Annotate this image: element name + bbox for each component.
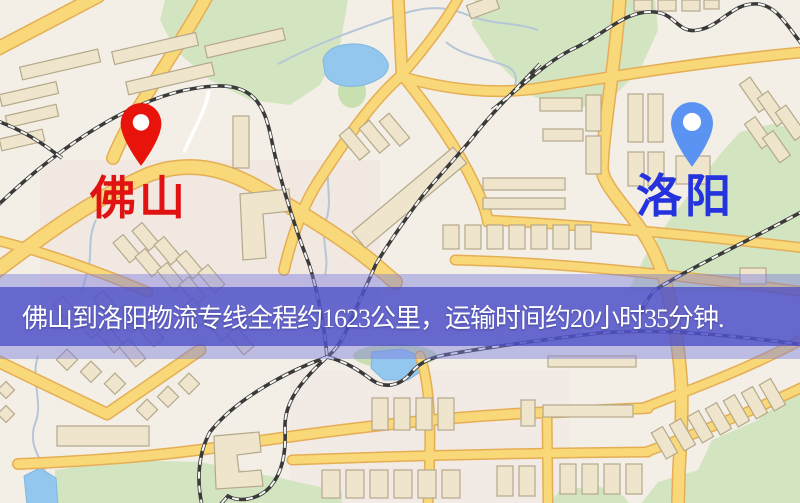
destination-city-label: 洛阳 <box>636 174 734 220</box>
route-info-text: 佛山到洛阳物流专线全程约1623公里，运输时间约20小时35分钟. <box>0 298 724 335</box>
origin-city-label: 佛山 <box>90 176 188 222</box>
map-view: 佛山 洛阳 佛山到洛阳物流专线全程约1623公里，运输时间约20小时35分钟. <box>0 0 800 503</box>
map-background <box>0 0 800 503</box>
origin-pin-icon[interactable] <box>119 102 163 168</box>
route-info-banner: 佛山到洛阳物流专线全程约1623公里，运输时间约20小时35分钟. <box>0 287 800 346</box>
destination-pin-icon[interactable] <box>669 101 715 169</box>
